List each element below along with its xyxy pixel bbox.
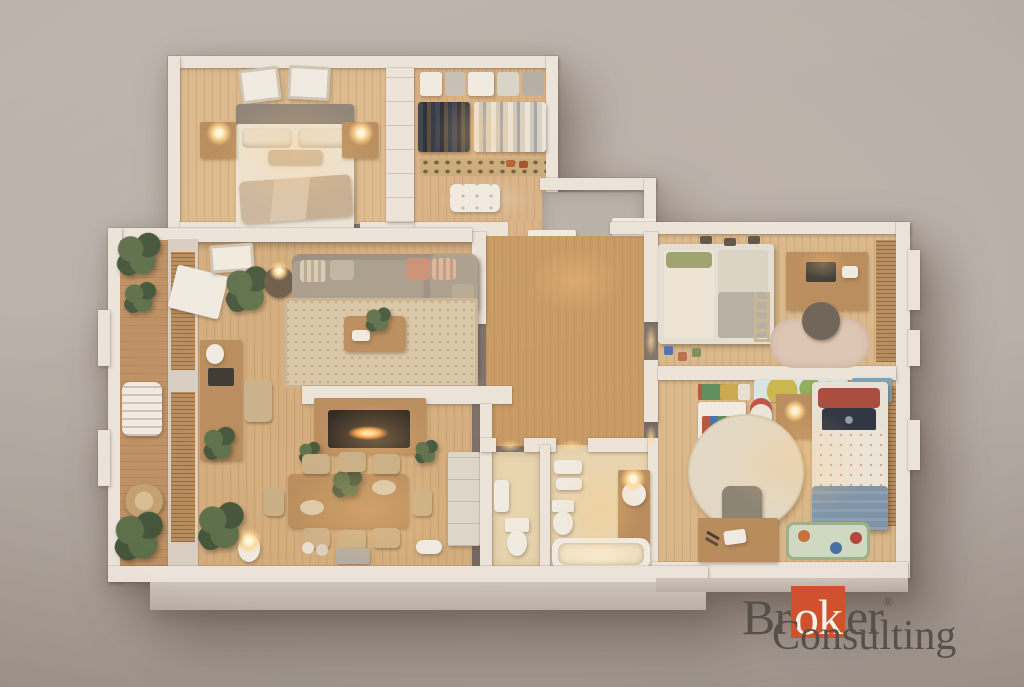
wall: [168, 56, 180, 236]
apartment-model: [0, 0, 1024, 687]
window-sill: [908, 420, 920, 470]
wall-art: [287, 65, 331, 101]
coffee-table-book: [352, 330, 370, 341]
desk-laptop: [806, 262, 836, 282]
dining-chair: [412, 488, 432, 516]
bed-throw-blanket: [239, 174, 354, 224]
wall: [108, 566, 708, 582]
window-blinds: [171, 392, 195, 542]
hallway-floor: [486, 236, 644, 446]
desk-papers: [842, 266, 858, 278]
kitchenette-cabinet: [448, 452, 480, 546]
office-chair: [244, 380, 272, 422]
sofa-pillow: [432, 258, 456, 280]
wall: [540, 178, 656, 190]
wall-art: [209, 242, 255, 273]
broker-consulting-logo: Broker® Consulting: [742, 586, 956, 657]
wall: [480, 438, 496, 452]
laptop: [208, 368, 234, 386]
desk-jug: [206, 344, 224, 364]
closet-divider-wardrobe: [386, 68, 414, 222]
sideboard: [336, 548, 370, 564]
wc-sink: [494, 480, 509, 512]
floor-candle: [238, 534, 260, 562]
wall: [546, 56, 558, 192]
wall: [168, 56, 558, 68]
dining-chair: [338, 452, 366, 472]
bed-pillow: [242, 128, 292, 148]
shoe-pair-orange: [519, 161, 528, 168]
closet-storage-box: [522, 72, 544, 96]
bunk-ladder: [754, 292, 770, 342]
placemat: [300, 500, 324, 515]
floor-plan-render: Broker® Consulting: [0, 0, 1024, 687]
closet-storage-box: [497, 72, 519, 96]
play-mat-toy: [798, 530, 810, 542]
play-mat: [786, 522, 870, 560]
door-light-spill: [644, 322, 658, 360]
wall: [588, 438, 656, 452]
window-blinds: [876, 240, 896, 362]
window-sill: [98, 310, 110, 366]
towel-stack: [554, 460, 582, 474]
dinnerware-stack: [302, 542, 314, 554]
logo-text-consulting: Consulting: [772, 615, 956, 657]
wall: [644, 360, 658, 422]
master-bed-headboard: [236, 104, 354, 126]
sofa-pillow: [406, 258, 430, 280]
wall-decal: [700, 236, 712, 244]
wc-toilet-bowl: [507, 530, 527, 556]
dining-chair: [302, 454, 330, 474]
closet-storage-box: [468, 72, 494, 96]
bed-pillow: [298, 128, 348, 148]
closet-storage-box: [420, 72, 442, 96]
bed-lumbar-pillow: [268, 150, 322, 165]
shoe-pair-orange: [506, 160, 515, 167]
serving-tray: [416, 540, 442, 554]
wall: [644, 232, 658, 322]
dining-chair: [264, 488, 284, 516]
placemat: [372, 480, 396, 495]
bunk-pillow: [666, 252, 712, 268]
rattan-chair: [124, 484, 164, 518]
dining-chair: [372, 528, 400, 548]
bathtub-basin: [558, 543, 644, 565]
nightstand: [342, 122, 378, 158]
window-sill: [908, 330, 920, 366]
hanging-clothes-dark: [418, 102, 470, 152]
nightstand: [200, 122, 236, 158]
closet-storage-box: [445, 72, 465, 96]
wall-face: [150, 582, 706, 610]
desk-chair: [802, 302, 840, 340]
wall-art: [238, 66, 282, 105]
lounge-chair: [122, 382, 162, 436]
kids-bed-duvet: [816, 430, 884, 490]
towel-stack: [556, 478, 582, 490]
sofa-pillow: [300, 260, 326, 282]
vanity-sink: [622, 482, 646, 506]
registered-mark-icon: ®: [883, 594, 893, 609]
shelf-toys: [698, 384, 750, 400]
floor-toy: [664, 346, 673, 355]
sofa-pillow: [330, 260, 354, 280]
kids-bed-pillow-dark: [822, 408, 876, 432]
dining-chair: [338, 530, 366, 550]
dining-chair: [372, 454, 400, 474]
fireplace-fire: [342, 424, 394, 442]
window-sill: [98, 430, 110, 486]
bathroom-toilet-bowl: [553, 511, 573, 535]
wall: [540, 445, 550, 573]
kids-bed-pillow-red: [818, 388, 880, 408]
wall: [480, 404, 492, 576]
hanging-clothes-light: [474, 102, 546, 152]
window-sill: [908, 250, 920, 310]
round-side-table: [264, 266, 294, 298]
closet-ottoman: [450, 184, 500, 212]
